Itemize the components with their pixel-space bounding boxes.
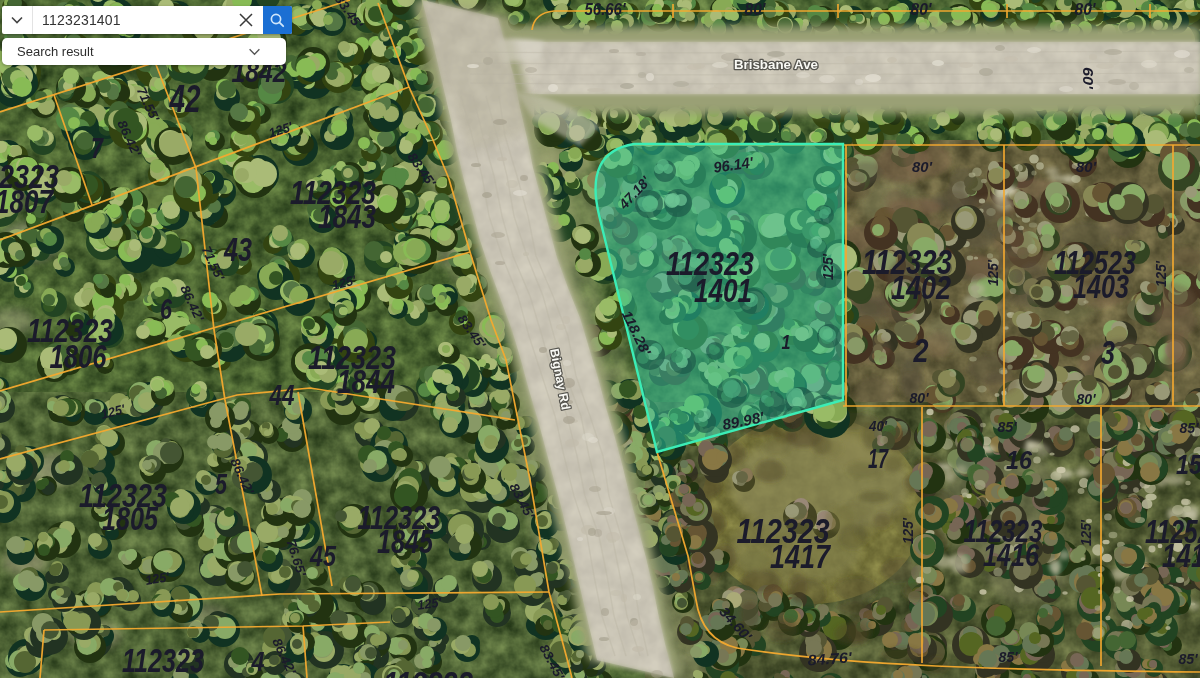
svg-text:85': 85' (1180, 419, 1199, 436)
svg-text:17: 17 (868, 444, 889, 474)
svg-text:7: 7 (91, 131, 104, 164)
svg-text:1417: 1417 (770, 537, 832, 575)
svg-text:16: 16 (1006, 446, 1033, 474)
svg-text:1415: 1415 (1162, 537, 1200, 574)
svg-text:45: 45 (309, 539, 337, 572)
svg-text:84.76': 84.76' (807, 648, 853, 668)
svg-text:1403: 1403 (1073, 268, 1129, 305)
svg-text:1401: 1401 (694, 271, 752, 309)
svg-text:1843: 1843 (318, 197, 376, 235)
svg-text:15: 15 (1176, 449, 1200, 480)
svg-text:2: 2 (913, 331, 929, 369)
svg-text:125': 125' (1153, 260, 1169, 287)
svg-text:1807: 1807 (0, 182, 55, 220)
svg-text:1: 1 (782, 331, 791, 353)
svg-text:125': 125' (900, 517, 916, 544)
svg-text:125': 125' (985, 259, 1001, 286)
svg-text:80': 80' (911, 1, 933, 18)
svg-text:80': 80' (745, 1, 767, 18)
svg-text:112823: 112823 (383, 664, 473, 678)
svg-text:1845: 1845 (377, 523, 433, 560)
svg-text:112323: 112323 (122, 642, 204, 678)
svg-text:44: 44 (269, 378, 295, 411)
svg-text:1806: 1806 (50, 337, 108, 375)
svg-text:42: 42 (169, 78, 201, 120)
svg-text:56.66': 56.66' (585, 1, 627, 18)
svg-text:40': 40' (868, 418, 888, 434)
svg-text:6: 6 (160, 292, 172, 325)
svg-text:125': 125' (820, 253, 836, 280)
svg-text:3: 3 (1101, 334, 1115, 371)
svg-text:85': 85' (999, 648, 1018, 665)
svg-text:1805: 1805 (102, 500, 158, 537)
svg-text:1844: 1844 (337, 362, 395, 400)
svg-text:1416: 1416 (983, 537, 1039, 573)
svg-text:80': 80' (910, 389, 929, 406)
svg-text:5: 5 (215, 467, 228, 500)
svg-text:43: 43 (223, 230, 252, 268)
svg-text:125': 125' (1078, 519, 1094, 546)
svg-text:1402: 1402 (891, 268, 951, 306)
svg-text:80': 80' (1077, 390, 1096, 407)
svg-text:80': 80' (1076, 158, 1096, 175)
svg-text:60': 60' (1080, 67, 1097, 89)
svg-text:85': 85' (998, 418, 1017, 435)
svg-text:80': 80' (1075, 1, 1097, 18)
svg-text:80': 80' (912, 158, 932, 175)
svg-text:85': 85' (1179, 650, 1198, 667)
svg-text:4: 4 (251, 646, 265, 677)
svg-text:Brisbane Ave: Brisbane Ave (734, 57, 818, 72)
